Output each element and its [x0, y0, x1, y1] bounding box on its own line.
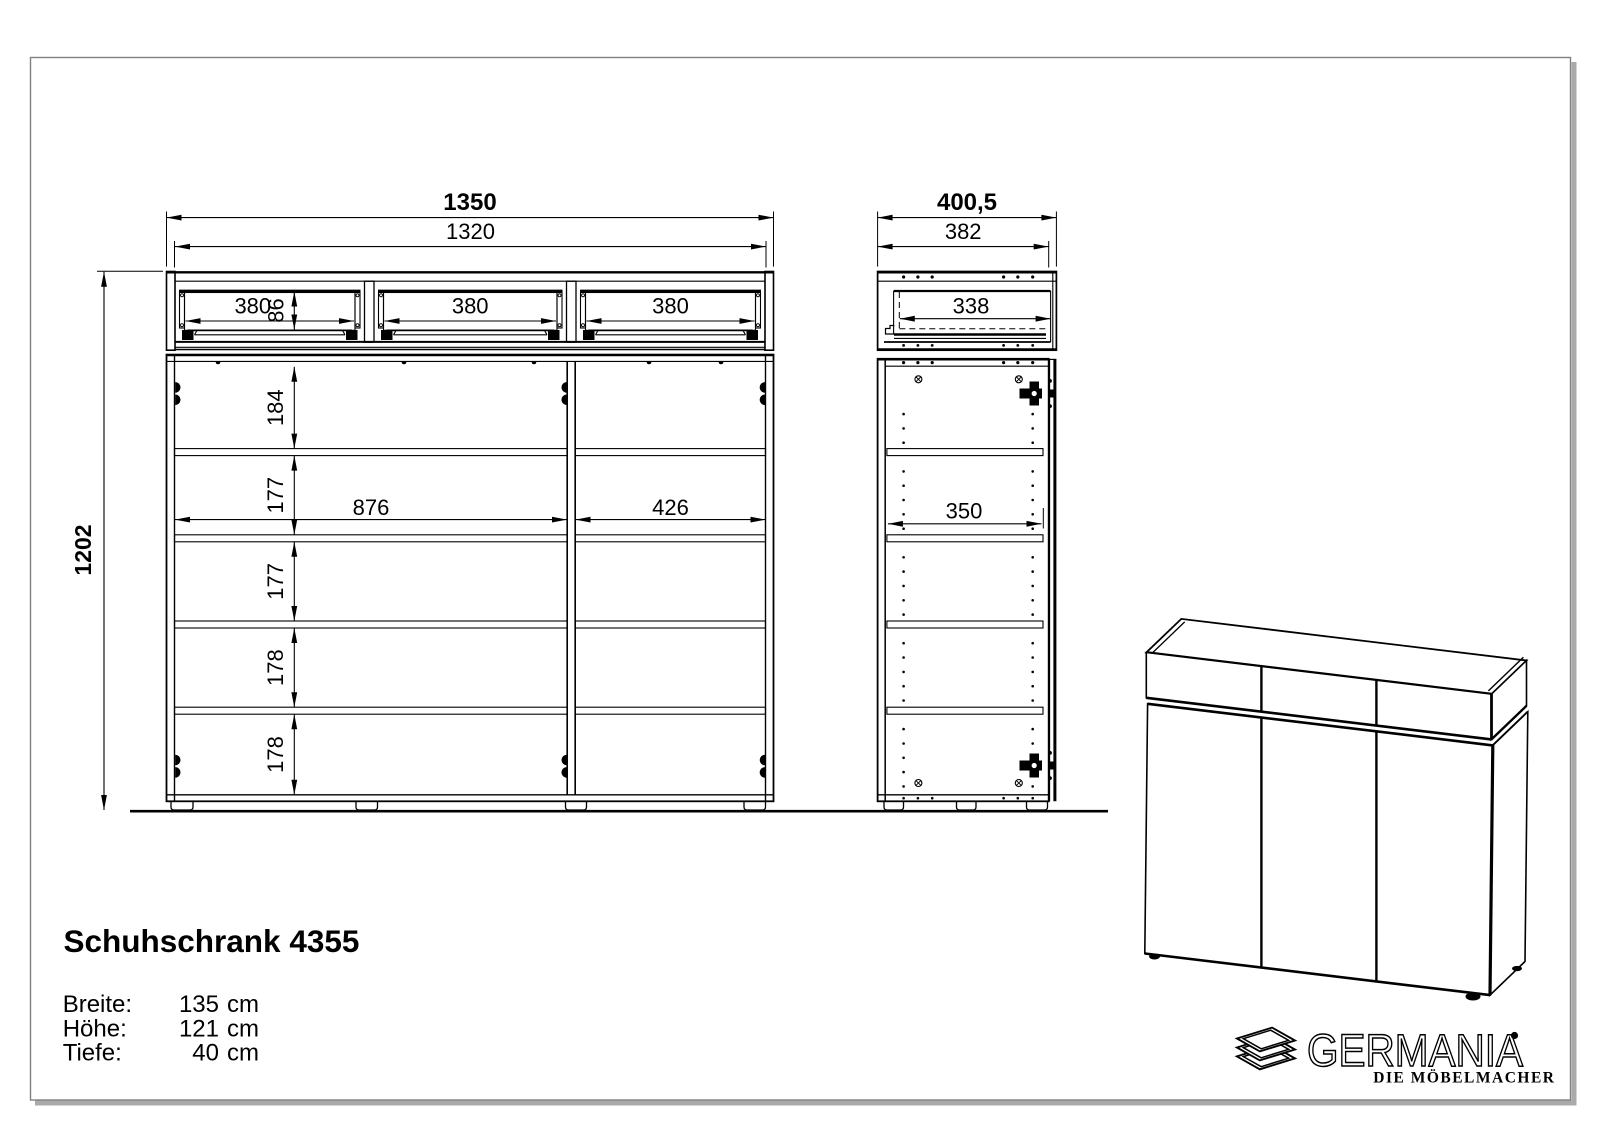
svg-text:Breite:: Breite: — [63, 991, 132, 1018]
svg-text:Höhe:: Höhe: — [63, 1015, 127, 1042]
svg-text:135: 135 — [179, 991, 219, 1018]
svg-text:cm: cm — [227, 1040, 259, 1067]
svg-text:GERMANIA: GERMANIA — [1307, 1025, 1523, 1076]
svg-text:400,5: 400,5 — [937, 189, 997, 216]
svg-text:DIE MÖBELMACHER: DIE MÖBELMACHER — [1373, 1070, 1555, 1087]
svg-text:178: 178 — [263, 736, 288, 773]
svg-text:178: 178 — [263, 649, 288, 686]
svg-text:1320: 1320 — [446, 219, 495, 244]
svg-text:338: 338 — [953, 294, 990, 319]
svg-text:cm: cm — [227, 1015, 259, 1042]
svg-text:177: 177 — [263, 477, 288, 514]
svg-text:382: 382 — [945, 219, 982, 244]
svg-text:1350: 1350 — [443, 189, 496, 216]
svg-text:40: 40 — [192, 1040, 219, 1067]
svg-text:cm: cm — [227, 991, 259, 1018]
svg-text:86: 86 — [264, 298, 289, 322]
svg-text:177: 177 — [263, 563, 288, 600]
svg-text:1202: 1202 — [70, 524, 96, 575]
svg-text:426: 426 — [652, 495, 689, 520]
svg-text:184: 184 — [263, 389, 288, 426]
svg-text:121: 121 — [179, 1015, 219, 1042]
svg-text:Schuhschrank 4355: Schuhschrank 4355 — [64, 923, 360, 959]
svg-text:380: 380 — [452, 294, 489, 319]
svg-text:876: 876 — [353, 495, 390, 520]
svg-text:380: 380 — [652, 294, 689, 319]
svg-text:350: 350 — [946, 499, 983, 524]
svg-text:Tiefe:: Tiefe: — [63, 1040, 122, 1067]
